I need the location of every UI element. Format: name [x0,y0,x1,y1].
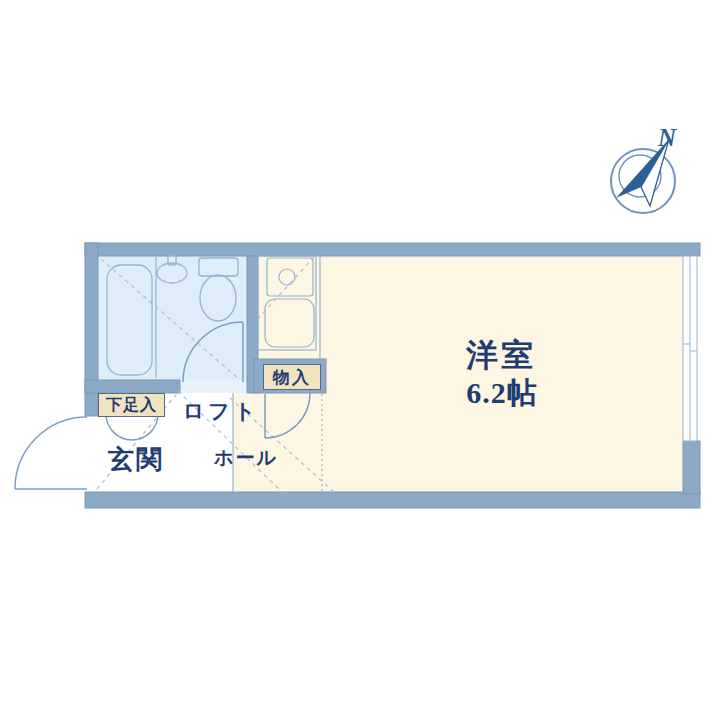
shoe-storage-box: 下足入 [98,393,165,417]
wall-bottom [85,492,700,508]
main-room-size-label: 6.2帖 [466,378,538,408]
sliding-window [683,256,697,441]
bathroom-floor [98,256,247,380]
closet-box: 物入 [263,364,321,390]
compass-north-label: N [658,124,676,152]
floor-plan-page: 洋室 6.2帖 ロフト ホール 玄関 下足入 物入 N [0,0,720,720]
entrance-door [15,417,87,489]
entrance-label: 玄関 [108,447,164,473]
closet-label: 物入 [273,369,311,386]
floor-plan-drawing [0,0,720,720]
hall-label: ホール [214,448,278,467]
wall-right-lower [683,441,700,494]
shoe-storage-label: 下足入 [106,397,157,413]
bathroom-door-threshold [180,380,247,393]
main-room-label: 洋室 [466,339,536,371]
loft-label: ロフト [183,401,259,422]
wall-bathroom-bottom [85,380,180,393]
wall-top [85,243,700,256]
